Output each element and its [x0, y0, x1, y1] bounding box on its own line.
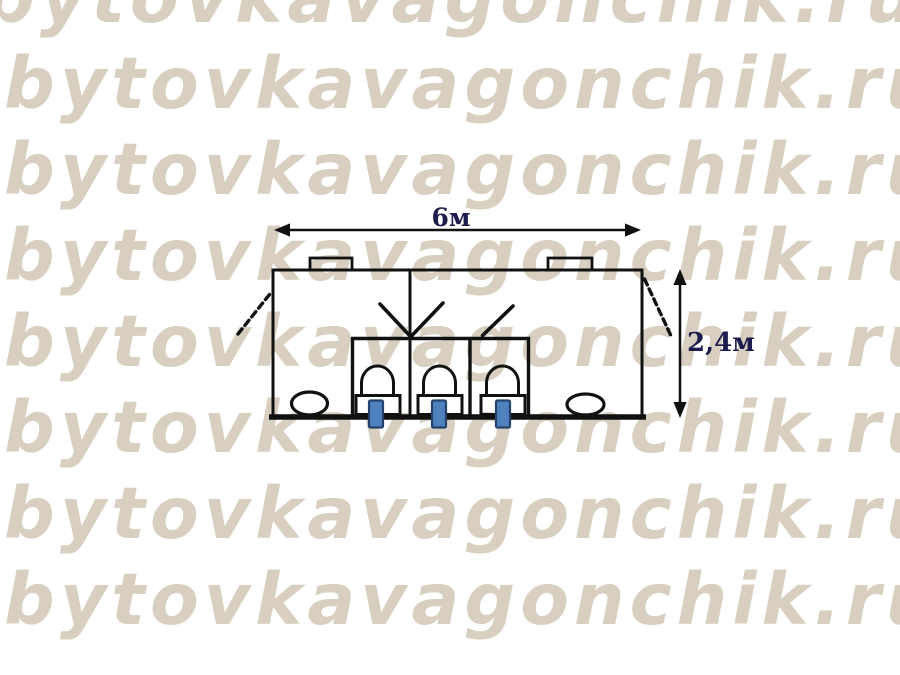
height-dimension: 2,4м [673, 269, 754, 418]
arrow-up-icon [673, 269, 686, 285]
stall-door-swing-right [483, 306, 514, 336]
sink-icon [292, 392, 328, 415]
arrow-right-icon [625, 223, 641, 236]
height-dimension-label: 2,4м [687, 328, 755, 358]
end-door-left [238, 292, 272, 334]
screenshot-canvas: bytovkavagonchik.ru bytovkavagonchik.ru … [0, 0, 900, 675]
waste-pipe-icon [496, 401, 510, 428]
watermark-row: bytovkavagonchik.ru [4, 565, 900, 635]
sink-icon [567, 394, 604, 415]
width-dimension-label: 6м [431, 203, 470, 232]
arrow-left-icon [274, 223, 290, 236]
arrow-down-icon [673, 402, 686, 418]
waste-pipe-icon [432, 401, 446, 428]
watermark-row: bytovkavagonchik.ru [0, 0, 900, 33]
width-dimension: 6м [274, 203, 641, 237]
stall-door-swing-middle [411, 303, 443, 337]
watermark-row: bytovkavagonchik.ru [4, 49, 900, 119]
end-door-right [645, 279, 673, 338]
cabin-plan-diagram: 6м 2,4м [200, 190, 760, 450]
roof-vent-right [548, 258, 592, 270]
stall-door-swing-left [380, 304, 411, 337]
watermark-row: bytovkavagonchik.ru [4, 479, 900, 549]
roof-vent-left [310, 258, 352, 270]
waste-pipe-icon [369, 401, 383, 428]
